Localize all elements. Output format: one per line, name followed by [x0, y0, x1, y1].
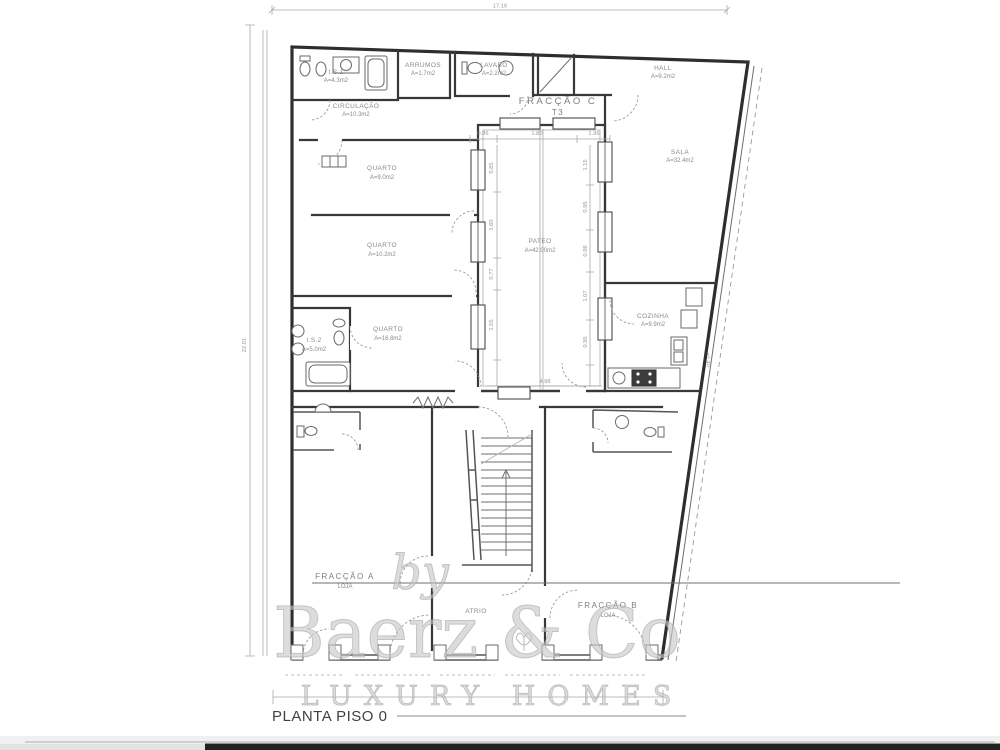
label-sala-area: A=32.4m2: [666, 158, 694, 164]
dim-patio-right-4: 0.95: [583, 336, 589, 347]
bottom-left-gap: [0, 744, 205, 750]
label-circulacao-name: CIRCULAÇÃO: [333, 101, 380, 110]
dim-patio-left-1: 1.60: [489, 219, 495, 230]
dim-patio-top-1: 1.80: [531, 131, 542, 137]
windows-and-doors: [310, 95, 638, 618]
label-is2-name: I.S.2: [306, 337, 321, 344]
floor-plan-canvas: 17.16 22.01 22.40: [0, 0, 1000, 750]
label-lavabo-area: A=2.2m2: [482, 71, 507, 77]
dim-patio-top-0: 0.86: [477, 131, 488, 137]
label-fraccao-a: FRACÇÃO A: [315, 572, 375, 581]
label-cozinha-name: COZINHA: [637, 313, 669, 320]
label-fraccao-c-type: T3: [552, 108, 564, 117]
dim-patio-left-3: 1.55: [489, 319, 495, 330]
next-image-edge: [205, 744, 1000, 750]
label-pateo-name: PATEO: [528, 238, 551, 245]
label-quarto3-area: A=16.8m2: [374, 336, 402, 342]
bottom-strip: [0, 736, 1000, 750]
label-quarto2-name: QUARTO: [367, 242, 397, 249]
room-labels: I.S.1 A=4.3m2 ARRUMOS A=1.7m2 LAVABO A=2…: [302, 62, 695, 619]
label-cozinha-area: A=9.9m2: [641, 322, 666, 328]
plan-title: PLANTA PISO 0: [272, 708, 387, 725]
label-quarto1-name: QUARTO: [367, 165, 397, 172]
label-sala-name: SALA: [671, 149, 689, 156]
label-hall-name: HALL: [654, 65, 672, 72]
floorplan-page: 17.16 22.01 22.40: [0, 0, 1000, 750]
dim-patio-right-3: 1.07: [583, 290, 589, 301]
label-is1-area: A=4.3m2: [324, 78, 349, 84]
dim-patio-right-1: 0.95: [583, 201, 589, 212]
dim-patio-left-2: 0.77: [489, 268, 495, 279]
label-pateo-area: A=42.00m2: [525, 248, 557, 254]
dim-patio-top-2: 1.96: [588, 131, 599, 137]
label-is2-area: A=5.0m2: [302, 347, 327, 353]
label-fraccao-a-type: LOJA: [337, 584, 352, 590]
dim-patio-bottom: 4.98: [539, 379, 550, 385]
label-arrumos-area: A=1.7m2: [411, 71, 436, 77]
dim-patio-right-2: 0.98: [583, 245, 589, 256]
label-hall-area: A=9.2m2: [651, 74, 676, 80]
dimension-lines: 17.16 22.01 22.40: [242, 4, 762, 663]
label-circulacao-area: A=10.3m2: [342, 112, 370, 118]
label-is1-name: I.S.1: [328, 69, 343, 76]
dim-patio-left-0: 0.85: [489, 162, 495, 173]
label-quarto1-area: A=9.0m2: [370, 175, 395, 181]
dim-patio-right-0: 1.15: [583, 159, 589, 170]
watermark: by Baerz & Co LUXURY HOMES: [273, 545, 683, 712]
label-arrumos-name: ARRUMOS: [405, 62, 441, 69]
label-quarto2-area: A=10.2m2: [368, 252, 396, 258]
label-quarto3-name: QUARTO: [373, 326, 403, 333]
label-fraccao-c: FRACÇÃO C: [519, 96, 597, 107]
dim-top-width: 17.16: [493, 4, 508, 10]
dim-left-height: 22.01: [242, 338, 248, 353]
label-lavabo-name: LAVABO: [480, 62, 507, 69]
watermark-brand: Baerz & Co: [273, 592, 680, 674]
